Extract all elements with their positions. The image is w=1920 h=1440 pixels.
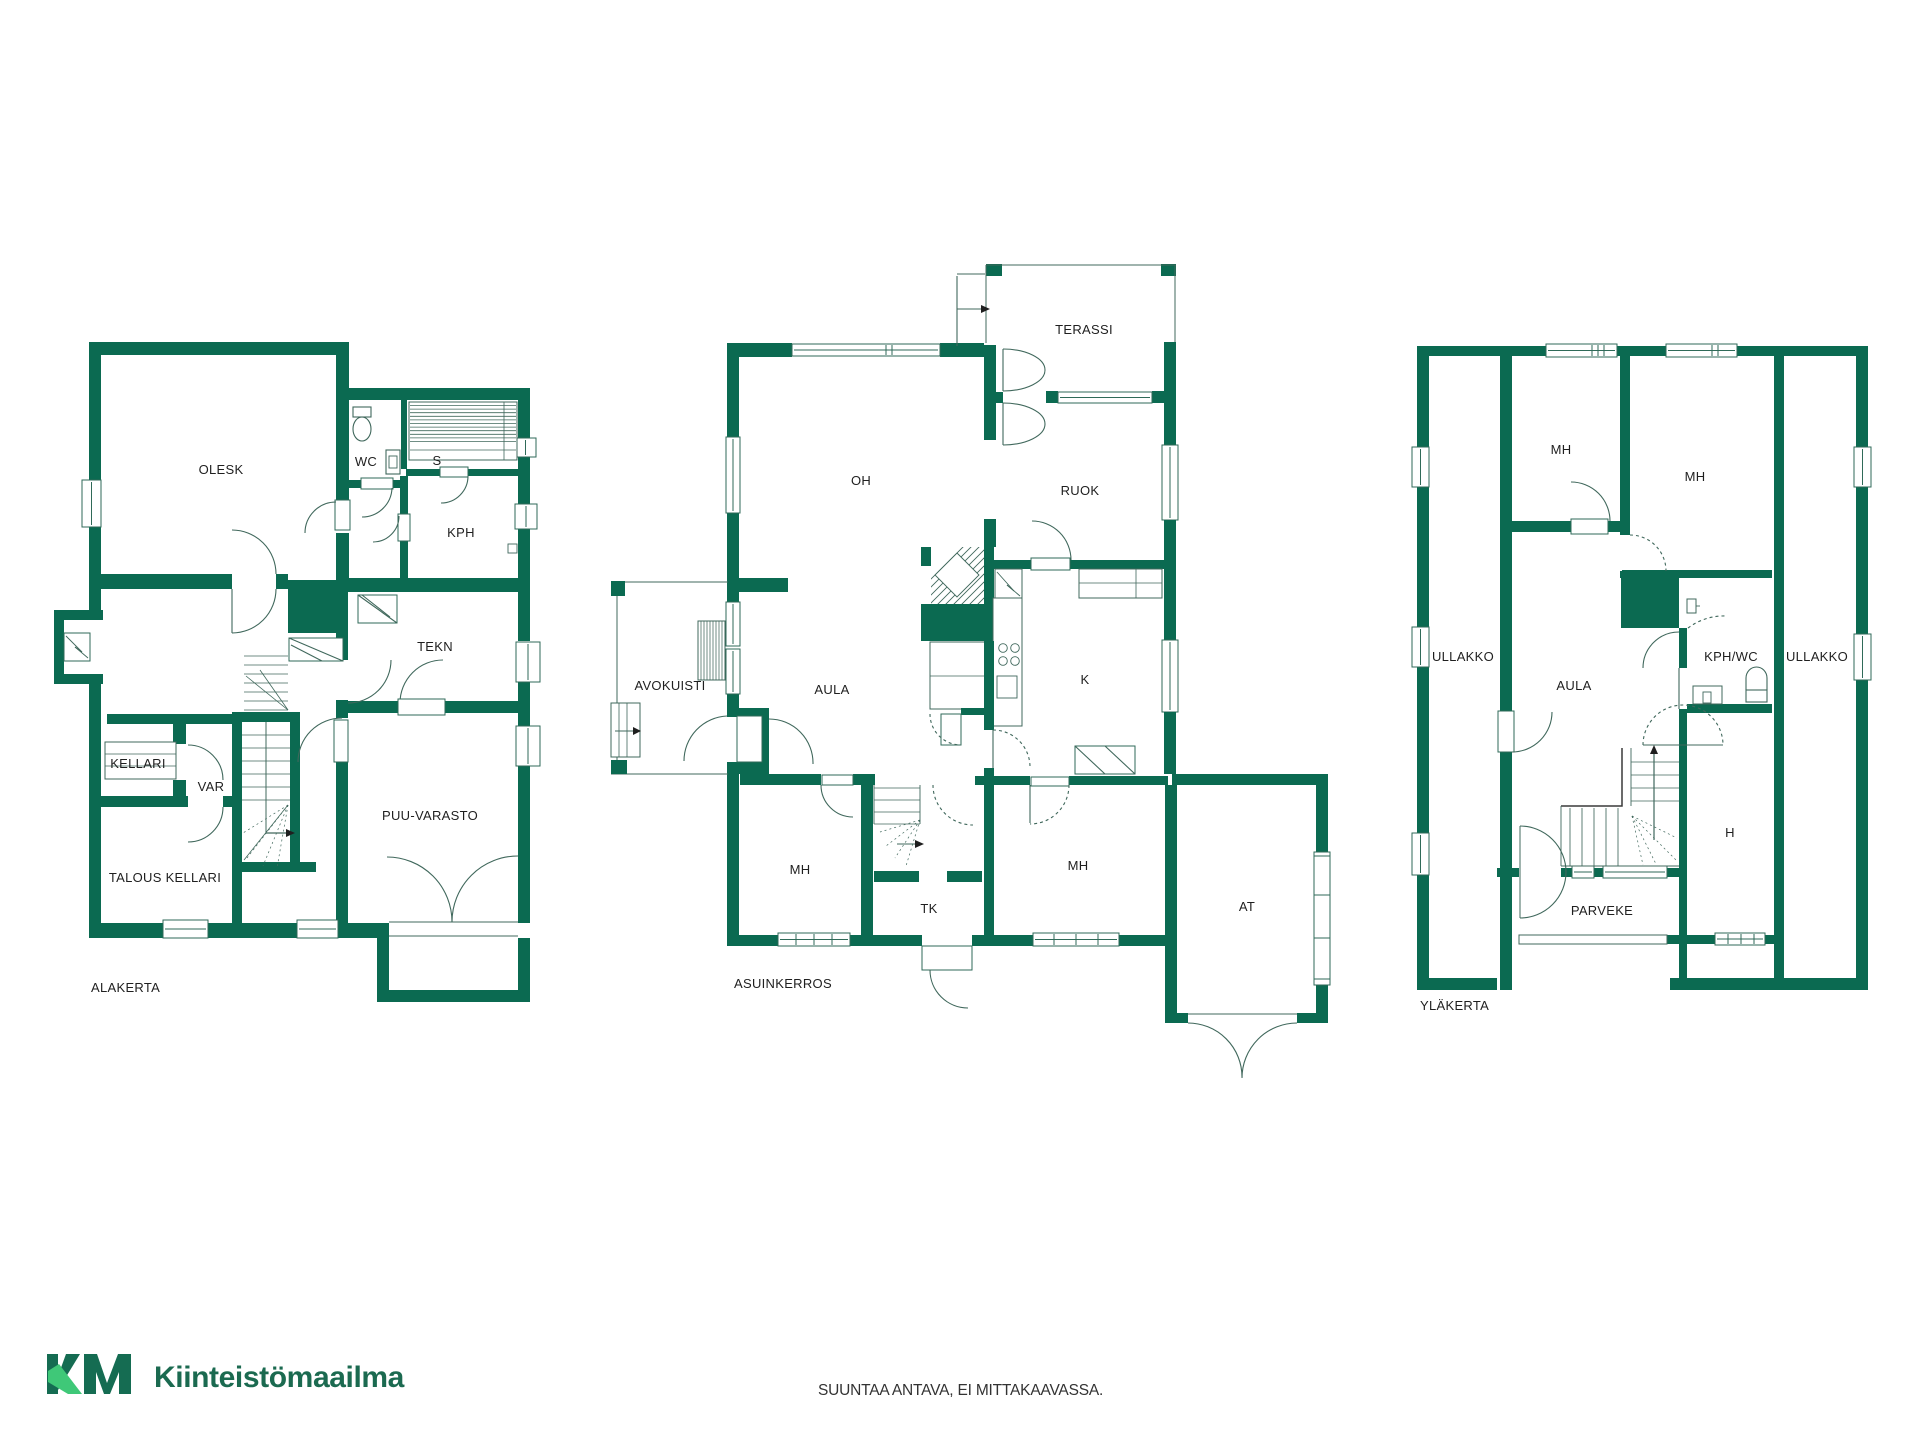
svg-text:TEKN: TEKN — [417, 639, 453, 654]
svg-text:MH: MH — [790, 862, 811, 877]
svg-text:KPH/WC: KPH/WC — [1704, 649, 1758, 664]
svg-text:SUUNTAA ANTAVA, EI MITTAKAAVAS: SUUNTAA ANTAVA, EI MITTAKAAVASSA. — [818, 1382, 1103, 1399]
svg-text:TALOUS KELLARI: TALOUS KELLARI — [109, 870, 221, 885]
svg-text:AVOKUISTI: AVOKUISTI — [634, 678, 705, 693]
svg-text:PARVEKE: PARVEKE — [1571, 903, 1633, 918]
svg-text:AULA: AULA — [1556, 678, 1591, 693]
svg-text:YLÄKERTA: YLÄKERTA — [1420, 998, 1489, 1013]
svg-text:KPH: KPH — [447, 525, 475, 540]
svg-text:K: K — [1081, 672, 1090, 687]
svg-text:ULLAKKO: ULLAKKO — [1786, 649, 1848, 664]
svg-text:H: H — [1725, 825, 1735, 840]
svg-text:PUU-VARASTO: PUU-VARASTO — [382, 808, 478, 823]
svg-text:S: S — [433, 453, 442, 468]
svg-text:VAR: VAR — [198, 779, 225, 794]
svg-text:WC: WC — [355, 454, 377, 469]
svg-text:MH: MH — [1551, 442, 1572, 457]
svg-text:AT: AT — [1239, 899, 1255, 914]
svg-text:OH: OH — [851, 473, 871, 488]
svg-text:RUOK: RUOK — [1061, 483, 1100, 498]
svg-text:OLESK: OLESK — [199, 462, 244, 477]
svg-text:AULA: AULA — [814, 682, 849, 697]
svg-text:Kiinteistömaailma: Kiinteistömaailma — [154, 1361, 405, 1394]
svg-text:ASUINKERROS: ASUINKERROS — [734, 976, 832, 991]
svg-text:MH: MH — [1685, 469, 1706, 484]
svg-text:TK: TK — [920, 901, 937, 916]
svg-text:KELLARI: KELLARI — [110, 756, 166, 771]
svg-text:TERASSI: TERASSI — [1055, 322, 1113, 337]
svg-text:ULLAKKO: ULLAKKO — [1432, 649, 1494, 664]
svg-text:ALAKERTA: ALAKERTA — [91, 980, 160, 995]
svg-text:MH: MH — [1068, 858, 1089, 873]
